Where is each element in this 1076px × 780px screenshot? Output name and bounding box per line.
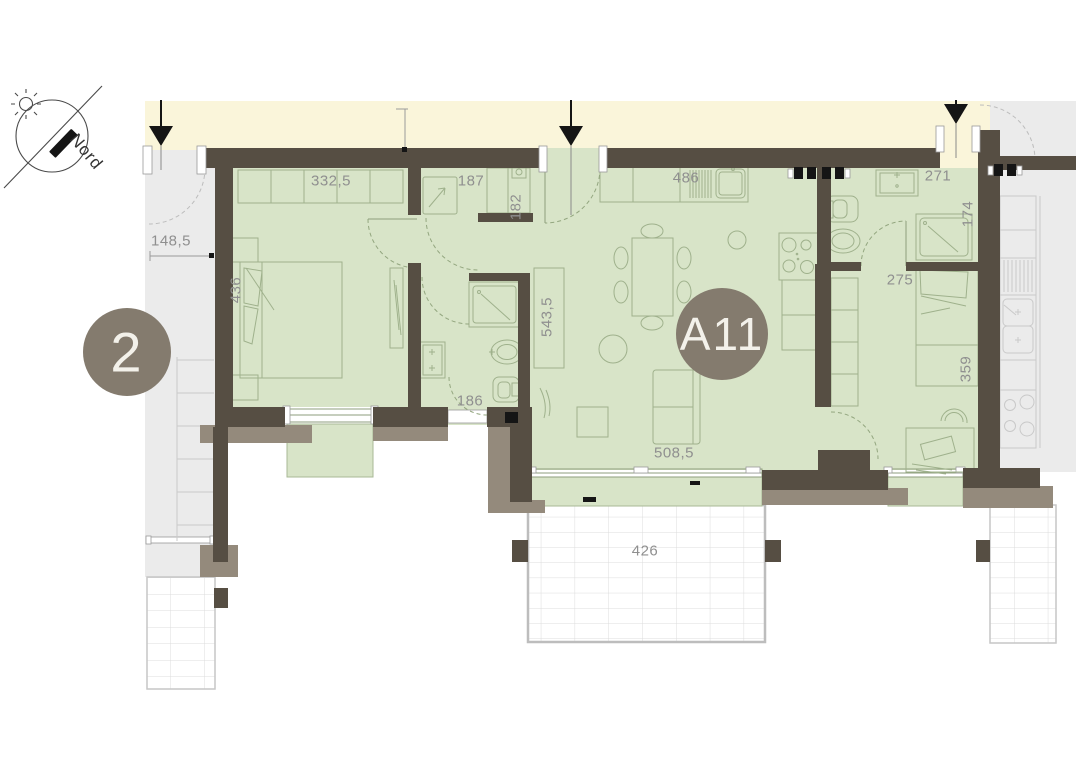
sun-icon (20, 98, 33, 111)
dim-terrace-width: 426 (632, 543, 659, 560)
dim-bathroom1-width: 271 (925, 168, 952, 185)
dim-bedroom1-width: 332,5 (311, 173, 351, 190)
terrace-grid-main (528, 505, 765, 642)
terrace-grid-left (147, 577, 215, 689)
dim-bedroom2-depth: 359 (958, 356, 975, 383)
dim-living-width: 508,5 (654, 445, 694, 462)
unit-label-neighbor: 2 (110, 320, 143, 385)
dim-kitchen-living-width: 486 (673, 170, 700, 187)
dim-living-depth: 543,5 (539, 297, 556, 337)
dim-bedroom2-hall-width: 275 (887, 272, 914, 289)
floor-plan: Nord A11 2 148,5 332,5 436 187 182 486 5… (0, 0, 1076, 780)
dim-left-neighbor-entry: 148,5 (151, 233, 191, 250)
unit-label-a11: A11 (680, 307, 764, 361)
dim-storage-width: 187 (458, 173, 485, 190)
floor-plan-canvas (0, 0, 1076, 780)
dim-bedroom1-depth: 436 (228, 277, 245, 304)
terrace-grid-right (990, 505, 1056, 643)
dim-storage-depth: 182 (508, 194, 525, 221)
dim-bathroom2-width: 186 (457, 393, 484, 410)
dim-shower-width: 174 (960, 201, 977, 228)
